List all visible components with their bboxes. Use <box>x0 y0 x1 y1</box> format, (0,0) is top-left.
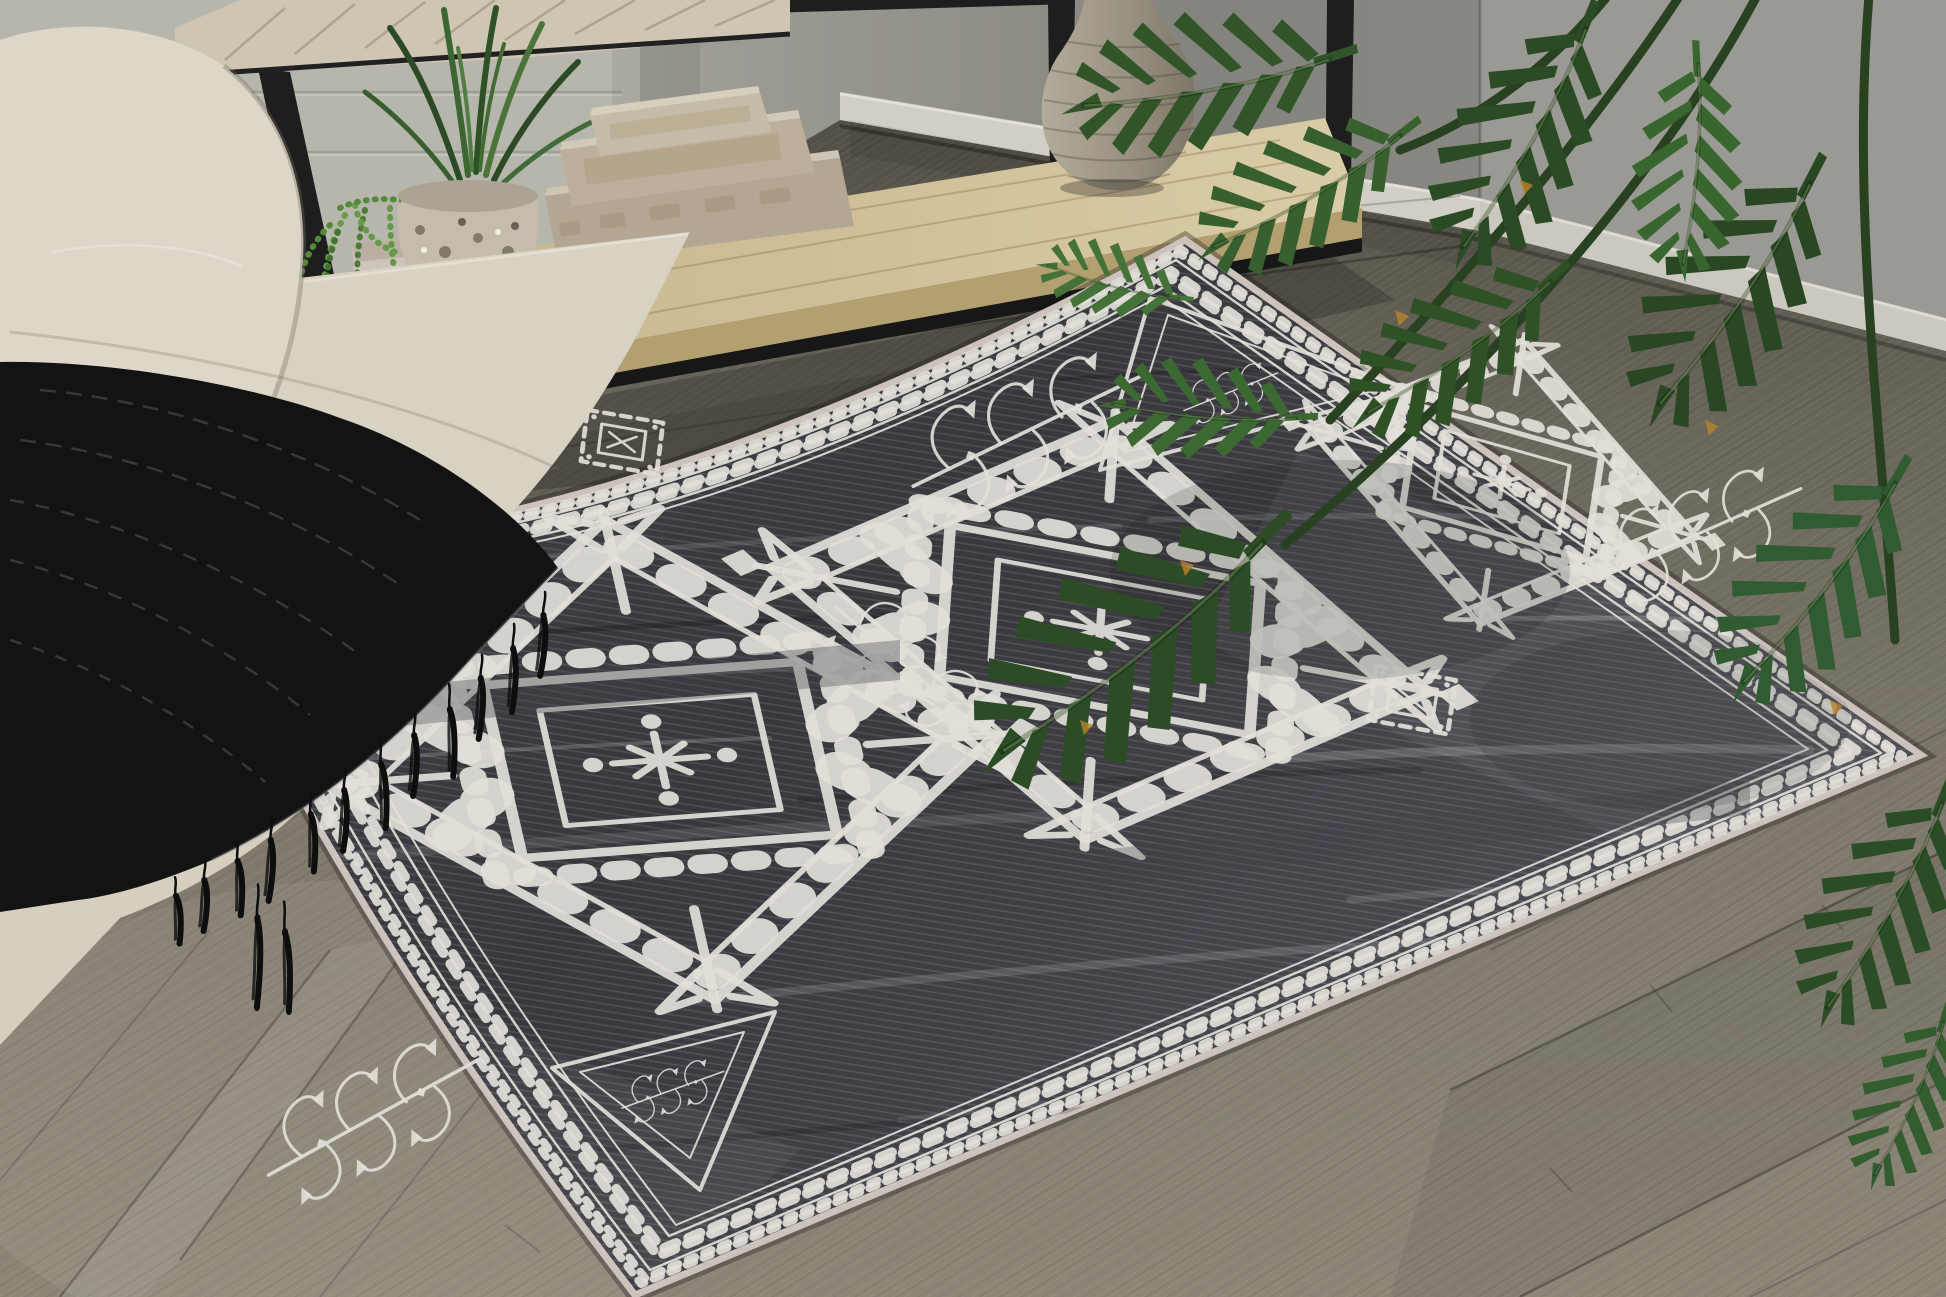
living-room-photo <box>0 0 1946 1297</box>
scene-canvas <box>0 0 1946 1297</box>
vignette <box>0 0 1946 1297</box>
